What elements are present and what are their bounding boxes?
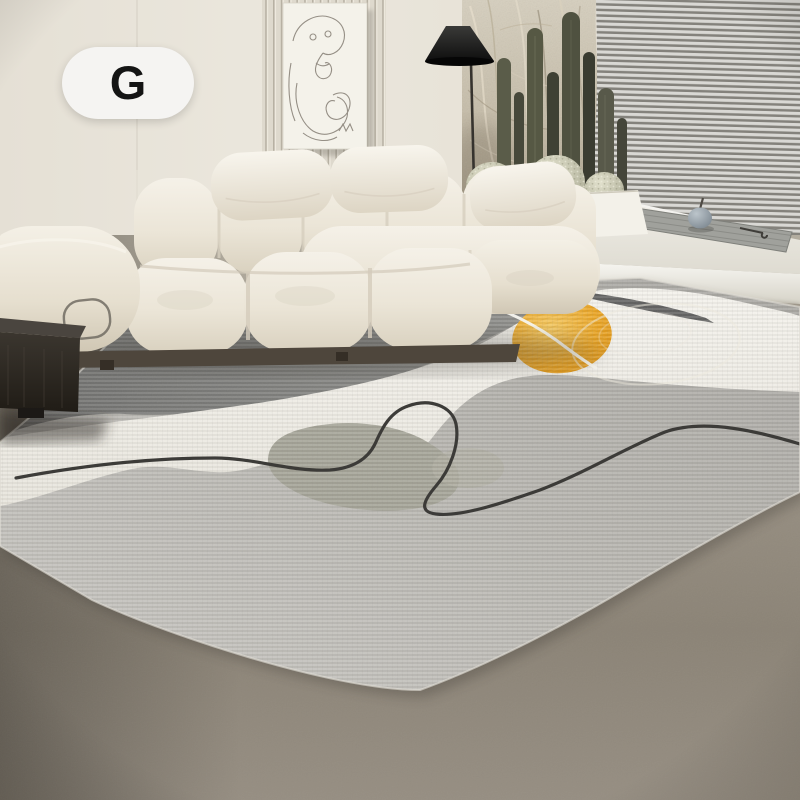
variant-letter-badge: G <box>62 47 194 119</box>
living-room-product-photo: G <box>0 0 800 800</box>
photo-vignette <box>0 0 800 800</box>
variant-letter: G <box>110 59 147 106</box>
scene <box>0 0 800 800</box>
